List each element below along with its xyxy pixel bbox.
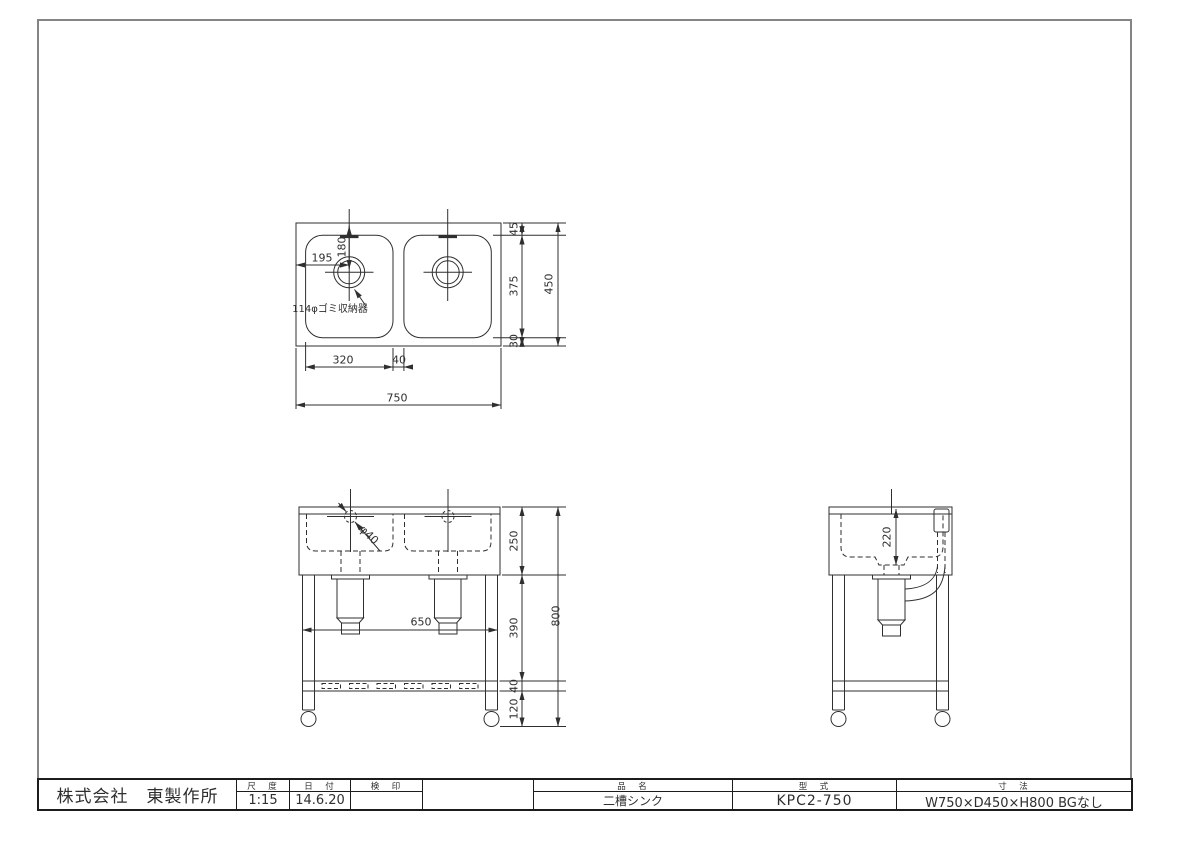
title-block: 株式会社 東製作所 尺 度 1:15 日 付 14.6.20 検 印 品 名 二…	[37, 778, 1133, 811]
front-view	[299, 489, 566, 727]
dim-label-drain-offset-y: 180	[337, 237, 348, 258]
dim-label-basin-depth: 375	[509, 276, 520, 297]
dim-label-drain-offset-x: 195	[312, 253, 333, 264]
dim-label-leg-upper: 390	[509, 618, 520, 639]
dim-label-basin-inner-depth: 220	[882, 527, 893, 548]
back-foot	[935, 712, 950, 727]
dim-label-overall-width: 750	[387, 393, 408, 404]
dim-label-basin-width: 320	[333, 355, 354, 366]
left-foot	[301, 712, 316, 727]
size-value: W750×D450×H800 BGなし	[897, 792, 1131, 811]
stamp-value	[351, 792, 422, 809]
product-label: 品 名	[534, 780, 732, 792]
size-label: 寸 法	[897, 780, 1131, 792]
spacer-cell	[422, 780, 533, 809]
dim-label-margin-front: 45	[509, 222, 520, 236]
company-name: 株式会社 東製作所	[39, 780, 236, 809]
front-foot	[831, 712, 846, 727]
model-cell: 型 式 KPC2-750	[732, 780, 896, 809]
date-cell: 日 付 14.6.20	[289, 780, 350, 809]
product-value: 二槽シンク	[534, 792, 732, 809]
stamp-label: 検 印	[351, 780, 422, 792]
right-foot	[484, 712, 499, 727]
drain-note-label: 114φゴミ収納器	[292, 305, 368, 315]
scale-value: 1:15	[237, 792, 289, 809]
dim-label-margin-back: 30	[509, 334, 520, 348]
size-cell: 寸 法 W750×D450×H800 BGなし	[896, 780, 1131, 809]
dim-label-rail: 40	[509, 679, 520, 693]
dim-label-overall-height: 800	[551, 606, 562, 627]
side-view	[829, 489, 952, 727]
scale-label: 尺 度	[237, 780, 289, 792]
model-value: KPC2-750	[733, 792, 896, 809]
date-value: 14.6.20	[290, 792, 350, 809]
model-label: 型 式	[733, 780, 896, 792]
scale-cell: 尺 度 1:15	[236, 780, 289, 809]
overflow-fitting	[934, 509, 949, 532]
dim-label-leg-lower: 120	[509, 699, 520, 720]
drawing-sheet: 195 180 114φゴミ収納器 320 40 750 45 375 30 4…	[0, 0, 1200, 848]
dim-label-basin-gap: 40	[392, 355, 406, 366]
dim-label-leg-span: 650	[409, 617, 434, 628]
product-cell: 品 名 二槽シンク	[533, 780, 732, 809]
drawing-canvas	[0, 0, 1200, 848]
stamp-cell: 検 印	[350, 780, 422, 809]
date-label: 日 付	[290, 780, 350, 792]
dim-label-overall-depth: 450	[544, 274, 555, 295]
dim-label-body-height: 250	[509, 531, 520, 552]
